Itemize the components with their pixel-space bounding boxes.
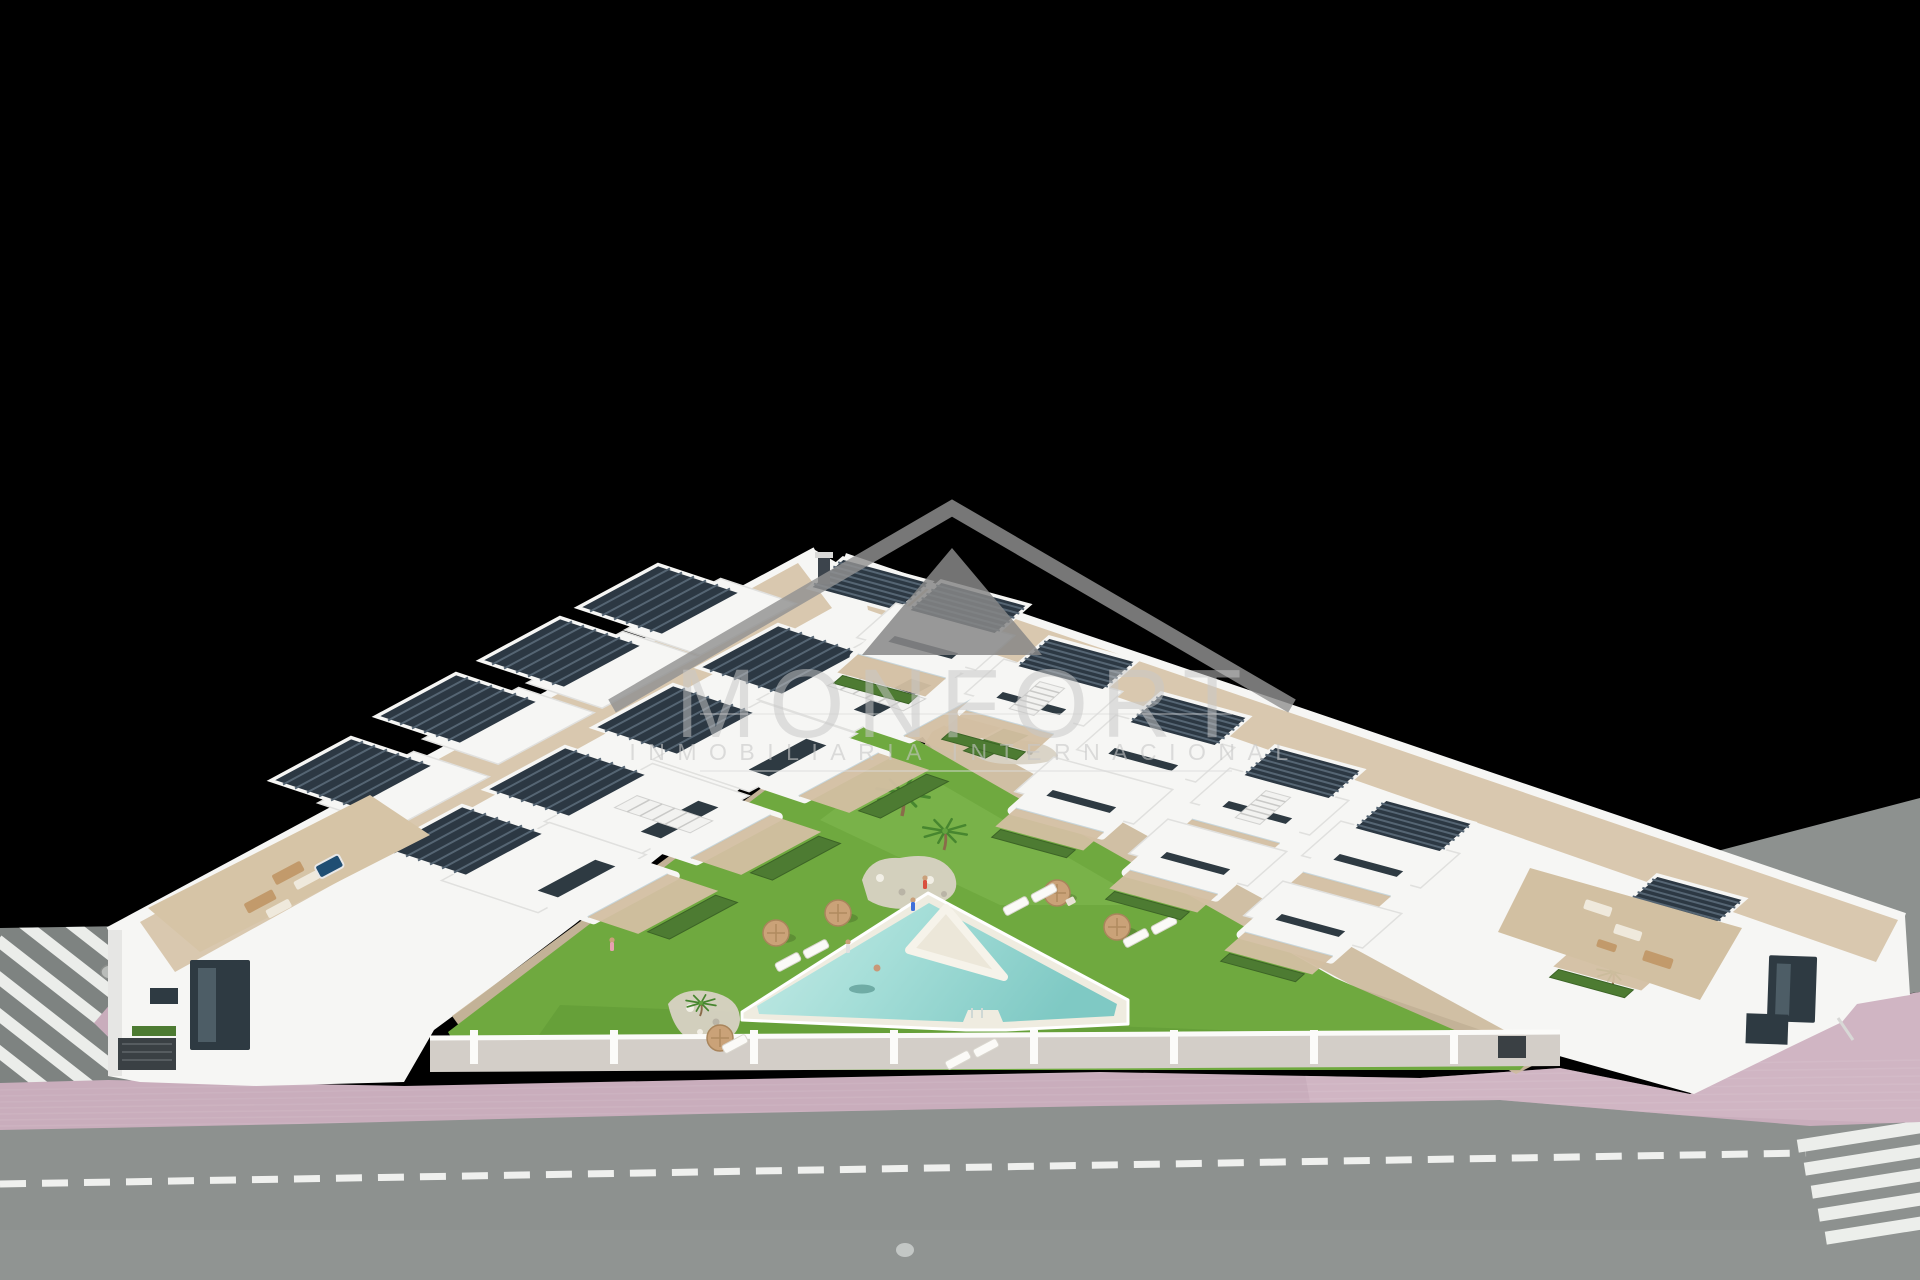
window <box>1767 955 1817 1023</box>
garage-vent <box>118 1038 176 1070</box>
person-body <box>846 944 850 953</box>
person-head <box>845 939 850 944</box>
swimmer <box>874 965 881 972</box>
chimney-cap <box>815 552 833 558</box>
wall-pillar <box>470 1030 478 1064</box>
person-body <box>610 942 614 951</box>
courtyard-wall <box>430 1030 1560 1072</box>
person-body <box>923 880 927 889</box>
wall-pillar <box>890 1030 898 1064</box>
manhole-cover <box>896 1243 914 1257</box>
palm-crown <box>699 1001 703 1005</box>
planter-hedge <box>132 1026 176 1036</box>
wall-pillar <box>1310 1030 1318 1064</box>
render-canvas: MONFORT INMOBILIARIA INTERNACIONAL <box>0 0 1920 1280</box>
stone <box>899 889 906 896</box>
person-head <box>609 937 614 942</box>
wall-pillar <box>750 1030 758 1064</box>
watermark-tagline: INMOBILIARIA INTERNACIONAL <box>629 739 1300 765</box>
wall-pillar <box>1450 1030 1458 1064</box>
person-head <box>922 875 927 880</box>
gate-plaque <box>1498 1036 1526 1058</box>
stone <box>876 874 884 882</box>
wall-pillar <box>1170 1030 1178 1064</box>
person-head <box>910 897 915 902</box>
window <box>1745 1013 1788 1044</box>
wall-pillar <box>1030 1030 1038 1064</box>
road-light-band <box>0 1230 1920 1280</box>
palm-crown <box>942 828 948 834</box>
aerial-render: MONFORT INMOBILIARIA INTERNACIONAL <box>0 0 1920 1280</box>
window-glass-pane <box>1775 963 1791 1015</box>
stone <box>941 891 947 897</box>
swimmer-shadow <box>849 985 875 994</box>
person-body <box>911 902 915 911</box>
wall-pillar <box>610 1030 618 1064</box>
window-glass-pane <box>198 968 216 1042</box>
window <box>150 988 178 1004</box>
